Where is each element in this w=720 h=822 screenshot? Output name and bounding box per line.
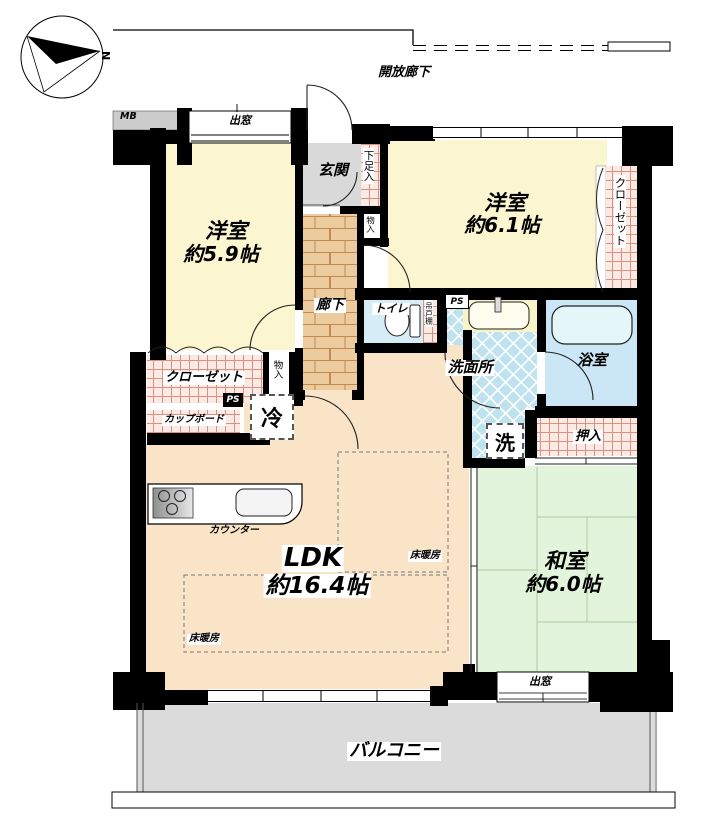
sink-icon — [236, 489, 292, 516]
label-ps-right: PS — [445, 294, 469, 309]
label-western-room-right-size: 約6.1帖 — [462, 215, 541, 236]
stove-icon — [153, 488, 193, 518]
label-balcony: バルコニー — [347, 742, 441, 761]
label-counter: カウンター — [207, 526, 261, 537]
label-ldk-name: LDK — [282, 545, 344, 572]
compass-n-label: N — [99, 51, 112, 60]
label-hanging-cupboard: 吊戸棚 — [425, 300, 433, 327]
label-washroom: 洗面所 — [445, 360, 494, 376]
label-entrance: 玄関 — [316, 163, 350, 179]
label-bay-window-bottom: 出窓 — [527, 676, 553, 688]
compass-icon: N — [21, 16, 112, 98]
kitchen-counter — [148, 484, 302, 524]
label-mb: MB — [118, 112, 139, 122]
washbasin-icon — [469, 297, 529, 329]
label-western-room-right-name: 洋室 — [482, 192, 528, 214]
label-storage-left: 物入 — [272, 358, 282, 381]
label-closet-left: クローゼット — [163, 371, 245, 385]
label-cupboard: カップボード — [162, 415, 226, 426]
label-western-room-left-size: 約5.9帖 — [181, 244, 260, 265]
label-laundry: 洗 — [486, 423, 524, 459]
label-floor-heating-1: 床暖房 — [408, 551, 442, 562]
label-fridge: 冷 — [250, 394, 294, 440]
corridor-outline — [113, 30, 670, 51]
floor-plan: N — [0, 0, 720, 822]
label-closet-right: クローゼット — [614, 175, 626, 248]
label-bathroom: 浴室 — [575, 353, 609, 369]
label-storage-top: 物入 — [365, 214, 374, 235]
label-western-room-left-name: 洋室 — [203, 220, 249, 242]
label-ldk-size: 約16.4帖 — [264, 574, 371, 598]
label-floor-heating-2: 床暖房 — [187, 634, 221, 645]
floorplan-svg: N — [0, 0, 720, 822]
label-japanese-room-name: 和室 — [542, 550, 588, 572]
label-ps-left: PS — [223, 393, 243, 407]
label-open-corridor: 開放廊下 — [376, 66, 432, 80]
label-bay-window-top: 出窓 — [227, 115, 253, 127]
bathtub-icon — [552, 306, 632, 344]
label-japanese-room-size: 約6.0帖 — [523, 574, 602, 595]
label-oshiire: 押入 — [573, 430, 603, 444]
label-toilet: トイレ — [373, 303, 410, 315]
label-shoe-cabinet: 下足入 — [363, 148, 374, 184]
label-corridor: 廊下 — [314, 298, 346, 313]
